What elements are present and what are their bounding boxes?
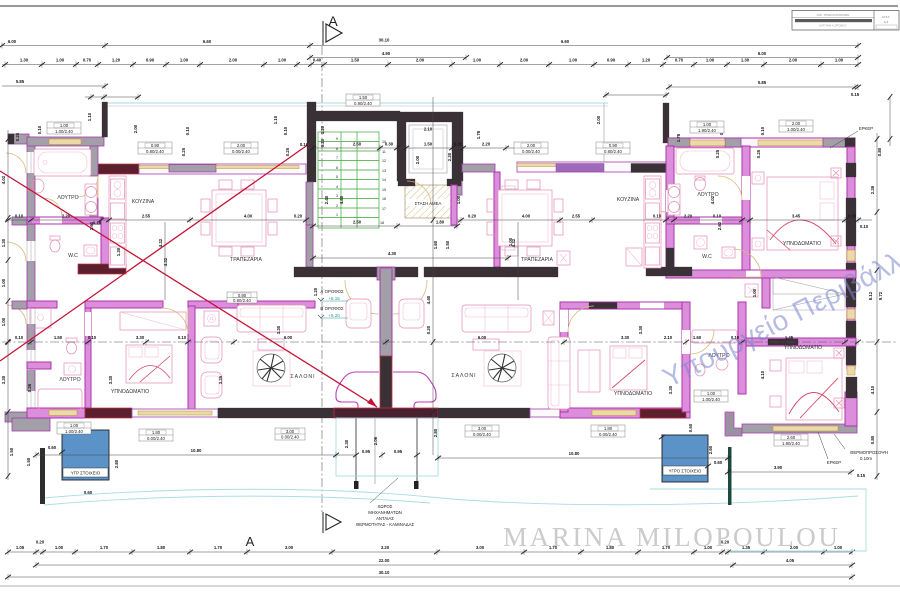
svg-text:10.80: 10.80 xyxy=(191,448,202,453)
svg-text:0.25: 0.25 xyxy=(285,147,290,156)
svg-text:0.20: 0.20 xyxy=(294,214,303,219)
svg-text:1.50: 1.50 xyxy=(445,240,450,249)
svg-text:22.00: 22.00 xyxy=(379,558,390,563)
svg-text:0.10: 0.10 xyxy=(15,214,24,219)
svg-text:4.30: 4.30 xyxy=(388,251,397,256)
svg-text:ΑΝΤΛΙΑΣ: ΑΝΤΛΙΑΣ xyxy=(376,516,394,521)
svg-text:0.40: 0.40 xyxy=(313,58,322,63)
svg-text:2.06: 2.06 xyxy=(373,436,378,445)
svg-text:14: 14 xyxy=(382,178,386,182)
svg-text:7: 7 xyxy=(336,156,338,160)
svg-text:W.C: W.C xyxy=(702,254,712,260)
svg-text:1.00: 1.00 xyxy=(473,58,482,63)
svg-text:2.00: 2.00 xyxy=(416,58,425,63)
svg-text:8: 8 xyxy=(336,147,338,151)
svg-text:0.60: 0.60 xyxy=(48,445,57,450)
svg-text:3.30: 3.30 xyxy=(621,335,630,340)
svg-text:ΥΠΝΟΔΩΜΑΤΙΟ: ΥΠΝΟΔΩΜΑΤΙΟ xyxy=(614,391,652,397)
svg-text:0.16: 0.16 xyxy=(93,221,102,226)
svg-text:1.00/2.40: 1.00/2.40 xyxy=(55,129,74,134)
svg-text:0.00/2.40: 0.00/2.40 xyxy=(522,149,541,154)
svg-text:1.00: 1.00 xyxy=(569,58,578,63)
svg-text:1.78: 1.78 xyxy=(476,130,481,139)
svg-text:3.20: 3.20 xyxy=(381,545,390,550)
svg-text:2.62: 2.62 xyxy=(717,221,722,230)
svg-text:1.00: 1.00 xyxy=(56,58,65,63)
svg-text:1: 1 xyxy=(336,213,338,217)
svg-text:4.02: 4.02 xyxy=(1,175,6,184)
svg-text:ΕΡΚΕΡ: ΕΡΚΕΡ xyxy=(827,460,841,465)
svg-text:0.10: 0.10 xyxy=(178,335,187,340)
svg-text:0.10: 0.10 xyxy=(760,126,765,135)
svg-text:Α΄ΟΡΟΦΟΣ: Α΄ΟΡΟΦΟΣ xyxy=(320,289,344,294)
svg-text:3.00: 3.00 xyxy=(286,429,295,434)
svg-text:1.50: 1.50 xyxy=(54,335,63,340)
svg-text:1.78: 1.78 xyxy=(676,133,681,142)
svg-text:1.70: 1.70 xyxy=(214,545,223,550)
svg-text:Β΄ΟΡΟΦΟΣ: Β΄ΟΡΟΦΟΣ xyxy=(320,306,344,311)
svg-text:1.20: 1.20 xyxy=(642,58,651,63)
svg-text:1.00/2.40: 1.00/2.40 xyxy=(65,429,84,434)
svg-text:0.00/2.40: 0.00/2.40 xyxy=(147,436,166,441)
svg-text:0.10: 0.10 xyxy=(88,335,97,340)
svg-text:0.80/2.40: 0.80/2.40 xyxy=(233,298,252,303)
svg-text:ΥΓΡ ΣΤΟΙΧΕΙΟ: ΥΓΡ ΣΤΟΙΧΕΙΟ xyxy=(71,471,101,476)
svg-text:2.20: 2.20 xyxy=(447,152,452,161)
svg-text:3.30: 3.30 xyxy=(1,375,6,384)
svg-text:16: 16 xyxy=(382,197,386,201)
svg-text:0.00/2.40: 0.00/2.40 xyxy=(232,149,251,154)
svg-text:+6.15: +6.15 xyxy=(328,296,340,301)
svg-text:0.10: 0.10 xyxy=(653,214,662,219)
svg-text:3.30: 3.30 xyxy=(276,325,281,334)
svg-text:Α.4: Α.4 xyxy=(884,20,889,24)
svg-text:5: 5 xyxy=(336,175,338,179)
svg-text:4: 4 xyxy=(336,185,338,189)
svg-text:12: 12 xyxy=(382,159,386,163)
svg-text:6: 6 xyxy=(336,166,338,170)
svg-text:2.20: 2.20 xyxy=(62,214,71,219)
svg-text:1.00/2.40: 1.00/2.40 xyxy=(702,397,721,402)
svg-text:4.32: 4.32 xyxy=(158,238,163,247)
svg-text:4.32: 4.32 xyxy=(163,257,168,266)
svg-text:ΤΡΑΠΕΖΑΡΙΑ: ΤΡΑΠΕΖΑΡΙΑ xyxy=(521,257,553,263)
svg-text:1.00: 1.00 xyxy=(1,317,6,326)
svg-text:ΑΡ.ΣΧ.: ΑΡ.ΣΧ. xyxy=(882,15,891,19)
svg-text:10.80: 10.80 xyxy=(569,451,580,456)
svg-text:0.25: 0.25 xyxy=(181,147,186,156)
svg-text:1.05: 1.05 xyxy=(16,545,25,550)
svg-text:0.20: 0.20 xyxy=(36,540,45,545)
svg-text:ΘΕΡΜΟΤΗΤΑΣ - ΚΑΜΙΝΑΔΑΣ: ΘΕΡΜΟΤΗΤΑΣ - ΚΑΜΙΝΑΔΑΣ xyxy=(356,522,415,527)
svg-text:0.95: 0.95 xyxy=(394,449,403,454)
svg-text:2.60: 2.60 xyxy=(708,445,713,454)
svg-text:MARINA MILOPOULOU: MARINA MILOPOULOU xyxy=(503,522,840,552)
svg-text:2.40: 2.40 xyxy=(324,195,329,204)
svg-text:1.10: 1.10 xyxy=(87,112,92,121)
svg-text:9.72: 9.72 xyxy=(878,291,883,300)
svg-text:2.30: 2.30 xyxy=(344,439,349,448)
svg-text:0.16: 0.16 xyxy=(300,142,309,147)
svg-text:0.10: 0.10 xyxy=(283,126,288,135)
svg-text:0.80: 0.80 xyxy=(877,147,882,156)
svg-text:1.00: 1.00 xyxy=(1,278,6,287)
svg-text:2.00: 2.00 xyxy=(792,121,801,126)
svg-text:ΚΟΥΖΙΝΑ: ΚΟΥΖΙΝΑ xyxy=(132,199,155,205)
svg-text:4.40: 4.40 xyxy=(426,295,431,304)
svg-text:4.10: 4.10 xyxy=(870,385,875,394)
svg-text:0.25: 0.25 xyxy=(715,149,720,158)
svg-text:3.00: 3.00 xyxy=(476,545,485,550)
svg-text:4.80: 4.80 xyxy=(339,195,344,204)
svg-text:1.20: 1.20 xyxy=(320,125,325,134)
svg-text:ΘΕΡΜΟΠΡΟΣΟΨΗ: ΘΕΡΜΟΠΡΟΣΟΨΗ xyxy=(850,450,888,455)
svg-text:30.10: 30.10 xyxy=(379,570,390,575)
svg-text:2.00: 2.00 xyxy=(133,124,138,133)
svg-text:2.00: 2.00 xyxy=(229,58,238,63)
svg-text:0.90: 0.90 xyxy=(607,58,616,63)
svg-text:4.90: 4.90 xyxy=(382,51,391,56)
svg-text:1.30: 1.30 xyxy=(116,247,121,256)
svg-text:1.00/2.40: 1.00/2.40 xyxy=(787,127,806,132)
svg-text:3: 3 xyxy=(336,194,338,198)
svg-text:1.00: 1.00 xyxy=(278,58,287,63)
svg-text:2.10: 2.10 xyxy=(664,335,673,340)
svg-text:1.30: 1.30 xyxy=(20,58,29,63)
svg-text:1.00: 1.00 xyxy=(60,123,69,128)
svg-text:5.85: 5.85 xyxy=(16,79,25,84)
svg-text:0.00/2.40: 0.00/2.40 xyxy=(281,435,300,440)
svg-text:2.20: 2.20 xyxy=(684,214,693,219)
svg-text:6.60: 6.60 xyxy=(561,39,570,44)
svg-text:0.30: 0.30 xyxy=(454,142,463,147)
svg-text:1.80: 1.80 xyxy=(152,430,161,435)
svg-text:1.60: 1.60 xyxy=(433,240,438,249)
svg-text:3.30: 3.30 xyxy=(136,335,145,340)
svg-text:0.20: 0.20 xyxy=(320,138,325,147)
svg-text:ΟΙΚ. ΤΡΙΩΝ ΚΑΤΟΙΚΙΩΝ: ΟΙΚ. ΤΡΙΩΝ ΚΑΤΟΙΚΙΩΝ xyxy=(817,13,850,17)
svg-text:0.90: 0.90 xyxy=(151,143,160,148)
svg-text:1.00: 1.00 xyxy=(752,288,757,297)
svg-text:2.60: 2.60 xyxy=(787,435,796,440)
svg-text:A: A xyxy=(246,534,255,549)
svg-text:17: 17 xyxy=(382,207,386,211)
svg-text:2.00: 2.00 xyxy=(596,115,601,124)
svg-text:ΣΑΛΟΝΙ: ΣΑΛΟΝΙ xyxy=(451,373,476,379)
svg-text:1.00: 1.00 xyxy=(707,391,716,396)
svg-text:0.70: 0.70 xyxy=(675,58,684,63)
svg-text:0.80/2.40: 0.80/2.40 xyxy=(146,149,165,154)
svg-text:30.10: 30.10 xyxy=(379,38,390,43)
svg-text:2.50: 2.50 xyxy=(353,220,362,225)
svg-text:0.30: 0.30 xyxy=(385,142,394,147)
svg-text:0.30: 0.30 xyxy=(848,214,857,219)
svg-text:6.00: 6.00 xyxy=(478,335,487,340)
svg-text:1.00: 1.00 xyxy=(55,545,64,550)
svg-text:1.50: 1.50 xyxy=(359,95,368,100)
svg-text:4.05: 4.05 xyxy=(786,558,795,563)
svg-text:0.70: 0.70 xyxy=(83,58,92,63)
svg-text:6.00: 6.00 xyxy=(284,335,293,340)
svg-text:3.30: 3.30 xyxy=(638,325,643,334)
svg-text:1.20: 1.20 xyxy=(112,58,121,63)
svg-text:2.10: 2.10 xyxy=(424,127,433,132)
svg-text:0.10: 0.10 xyxy=(37,125,42,134)
svg-text:1.50: 1.50 xyxy=(9,447,14,456)
svg-text:4.00: 4.00 xyxy=(522,214,531,219)
svg-text:1.90/2.40: 1.90/2.40 xyxy=(782,441,801,446)
svg-text:0.10: 0.10 xyxy=(185,126,190,135)
svg-text:ΣΤΑΣΗ ΑΜΕΑ: ΣΤΑΣΗ ΑΜΕΑ xyxy=(415,201,442,206)
svg-text:1.00: 1.00 xyxy=(70,423,79,428)
svg-text:0.00/2.40: 0.00/2.40 xyxy=(473,432,492,437)
svg-text:1.30: 1.30 xyxy=(1,238,6,247)
svg-text:6.00: 6.00 xyxy=(758,51,767,56)
svg-text:ΤΡΑΠΕΖΑΡΙΑ: ΤΡΑΠΕΖΑΡΙΑ xyxy=(230,257,262,263)
svg-text:0.20: 0.20 xyxy=(468,214,477,219)
svg-text:1.00: 1.00 xyxy=(835,58,844,63)
svg-text:ΚΟΥΖΙΝΑ: ΚΟΥΖΙΝΑ xyxy=(617,197,640,203)
svg-text:3.00: 3.00 xyxy=(285,545,294,550)
svg-text:0.15: 0.15 xyxy=(857,473,866,478)
svg-text:1.70: 1.70 xyxy=(100,545,109,550)
svg-text:1.90/2.40: 1.90/2.40 xyxy=(698,128,717,133)
svg-text:0.00/2.40: 0.00/2.40 xyxy=(599,432,618,437)
svg-text:ΥΠΝΟΔΩΜΑΤΙΟ: ΥΠΝΟΔΩΜΑΤΙΟ xyxy=(783,241,821,247)
svg-text:3.90: 3.90 xyxy=(774,465,783,470)
svg-text:5.85: 5.85 xyxy=(758,80,767,85)
svg-text:2.00: 2.00 xyxy=(415,155,420,164)
svg-text:ΧΩΡΟΣ: ΧΩΡΟΣ xyxy=(378,504,393,509)
svg-text:0.80/2.40: 0.80/2.40 xyxy=(604,149,623,154)
svg-text:0.90/2.40: 0.90/2.40 xyxy=(354,101,373,106)
svg-text:3.45: 3.45 xyxy=(792,214,801,219)
svg-text:2: 2 xyxy=(336,204,338,208)
svg-text:ΣΑΛΟΝΙ: ΣΑΛΟΝΙ xyxy=(290,374,315,380)
svg-text:ΛΟΥΤΡΟ: ΛΟΥΤΡΟ xyxy=(697,192,718,198)
svg-text:0.95: 0.95 xyxy=(362,449,371,454)
svg-text:2.55: 2.55 xyxy=(142,214,151,219)
svg-text:ΜΗΧΑΝΗΜΑΤΩΝ: ΜΗΧΑΝΗΜΑΤΩΝ xyxy=(368,510,402,515)
svg-text:+9.20: +9.20 xyxy=(328,313,340,318)
svg-text:2.50: 2.50 xyxy=(353,142,362,147)
svg-text:1.00: 1.00 xyxy=(456,195,461,204)
svg-text:4.10: 4.10 xyxy=(760,370,765,379)
svg-text:ΥΠΝΟΔΩΜΑΤΙΟ: ΥΠΝΟΔΩΜΑΤΙΟ xyxy=(784,345,822,351)
svg-text:1.00: 1.00 xyxy=(706,58,715,63)
svg-text:2.00: 2.00 xyxy=(237,143,246,148)
svg-text:1.30: 1.30 xyxy=(741,58,750,63)
svg-text:0.15: 0.15 xyxy=(851,92,860,97)
svg-text:2.00: 2.00 xyxy=(520,58,529,63)
svg-text:2.80: 2.80 xyxy=(433,428,438,437)
svg-text:0.50: 0.50 xyxy=(688,423,693,432)
svg-text:1.50: 1.50 xyxy=(424,142,433,147)
svg-text:0.25: 0.25 xyxy=(756,149,761,158)
svg-text:0.90: 0.90 xyxy=(609,143,618,148)
svg-text:ΛΟΥΤΡΟ: ΛΟΥΤΡΟ xyxy=(57,195,78,201)
svg-text:0.90: 0.90 xyxy=(146,58,155,63)
svg-text:15: 15 xyxy=(382,188,386,192)
svg-text:3.00: 3.00 xyxy=(478,426,487,431)
svg-text:ΛΟΥΤΡΟ: ΛΟΥΤΡΟ xyxy=(59,377,80,383)
svg-text:11: 11 xyxy=(382,150,386,154)
svg-text:4.00: 4.00 xyxy=(244,214,253,219)
svg-text:2.20: 2.20 xyxy=(482,142,491,147)
svg-text:18: 18 xyxy=(380,221,384,225)
svg-text:1.80: 1.80 xyxy=(604,426,613,431)
svg-text:1.80: 1.80 xyxy=(157,545,166,550)
svg-text:ΥΠΝΟΔΩΜΑΤΙΟ: ΥΠΝΟΔΩΜΑΤΙΟ xyxy=(111,389,149,395)
svg-text:0.26: 0.26 xyxy=(27,383,32,392)
svg-text:1.00: 1.00 xyxy=(180,58,189,63)
svg-text:2.55: 2.55 xyxy=(572,214,581,219)
svg-text:W.C: W.C xyxy=(68,253,78,259)
svg-text:1.50: 1.50 xyxy=(351,58,360,63)
svg-text:6.00: 6.00 xyxy=(8,39,17,44)
svg-text:2.00: 2.00 xyxy=(789,58,798,63)
svg-text:2.26: 2.26 xyxy=(870,185,875,194)
svg-text:0.20: 0.20 xyxy=(426,325,431,334)
svg-text:13: 13 xyxy=(382,169,386,173)
svg-text:0.80: 0.80 xyxy=(870,435,875,444)
svg-text:0.10: 0.10 xyxy=(15,335,24,340)
svg-text:0.10: 0.10 xyxy=(713,214,722,219)
svg-text:1.00: 1.00 xyxy=(508,237,513,246)
svg-text:1.00: 1.00 xyxy=(703,122,712,127)
svg-text:ΥΓΡΟ ΣΤΟΙΧΕΙΟ: ΥΓΡΟ ΣΤΟΙΧΕΙΟ xyxy=(669,469,702,474)
svg-text:3.30: 3.30 xyxy=(108,375,113,384)
svg-text:0.10m: 0.10m xyxy=(860,456,872,461)
svg-text:1.10: 1.10 xyxy=(273,115,278,124)
svg-text:0.25: 0.25 xyxy=(15,132,20,141)
svg-text:2.00: 2.00 xyxy=(527,143,536,148)
svg-text:2.80: 2.80 xyxy=(114,459,119,468)
svg-text:9: 9 xyxy=(336,137,338,141)
svg-text:1.20: 1.20 xyxy=(313,287,318,296)
svg-text:6.60: 6.60 xyxy=(203,39,212,44)
svg-text:0.60: 0.60 xyxy=(84,490,93,495)
svg-text:3.35: 3.35 xyxy=(218,375,223,384)
svg-text:0.60: 0.60 xyxy=(714,460,723,465)
svg-text:ΕΡΚΕΡ: ΕΡΚΕΡ xyxy=(859,126,873,131)
svg-text:ΚΑΤΟΨΗ Α ΟΡΟΦΟΥ: ΚΑΤΟΨΗ Α ΟΡΟΦΟΥ xyxy=(819,24,846,28)
svg-text:0.10: 0.10 xyxy=(860,224,869,229)
svg-text:1.60: 1.60 xyxy=(693,335,702,340)
svg-text:1.50: 1.50 xyxy=(26,457,31,466)
svg-text:2.62: 2.62 xyxy=(89,221,94,230)
svg-text:1.80: 1.80 xyxy=(436,220,445,225)
svg-text:1.45: 1.45 xyxy=(785,335,794,340)
